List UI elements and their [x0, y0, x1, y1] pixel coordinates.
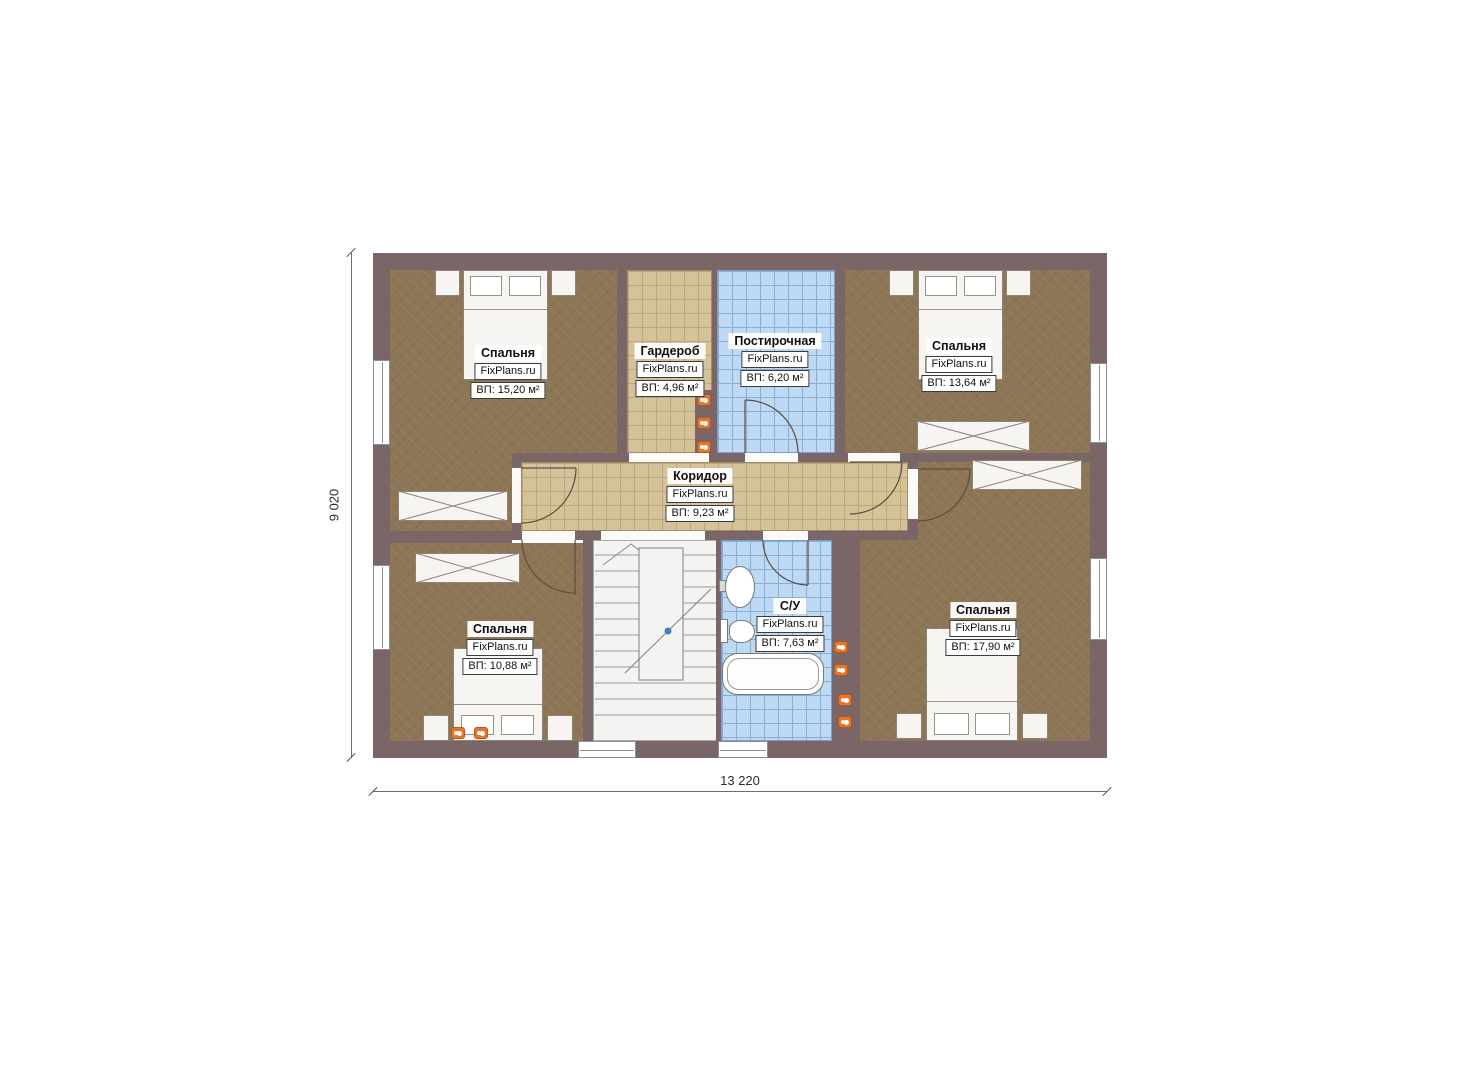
room-brand: FixPlans.ru	[636, 361, 703, 378]
room-name: Спальня	[475, 345, 541, 361]
room-brand: FixPlans.ru	[756, 616, 823, 633]
nightstand	[896, 713, 922, 739]
room-area: ВП: 17,90 м²	[945, 639, 1020, 656]
room-brand: FixPlans.ru	[666, 486, 733, 503]
room-brand: FixPlans.ru	[949, 620, 1016, 637]
room-name: Постирочная	[728, 333, 821, 349]
wall-outer-left	[373, 253, 390, 758]
dimension-height-label: 9 020	[327, 489, 342, 522]
door-opening	[908, 469, 918, 519]
door-opening	[763, 531, 808, 540]
stairs-opening	[601, 531, 705, 540]
room-name: Гардероб	[634, 343, 705, 359]
socket-icon	[838, 694, 852, 706]
pillow	[964, 276, 996, 296]
dimension-line-horizontal	[373, 791, 1107, 792]
pillow	[501, 715, 534, 735]
room-area: ВП: 6,20 м²	[740, 370, 809, 387]
staircase-floor	[593, 540, 718, 741]
wardrobe	[415, 553, 520, 583]
door-opening	[522, 531, 575, 540]
wall-interior	[583, 540, 593, 741]
wall-outer-right	[1090, 253, 1107, 758]
wall-outer-top	[373, 253, 1107, 270]
pillow	[975, 713, 1010, 735]
nightstand	[547, 715, 573, 741]
nightstand	[423, 715, 449, 741]
nightstand	[889, 270, 914, 296]
pillow	[934, 713, 969, 735]
room-name: Спальня	[467, 621, 533, 637]
room-brand: FixPlans.ru	[474, 363, 541, 380]
dimension-width-label: 13 220	[720, 773, 760, 788]
window	[373, 565, 390, 650]
room-label-bedroom-top-left: Спальня FixPlans.ru ВП: 15,20 м²	[470, 345, 545, 399]
door-opening	[848, 453, 900, 462]
room-name: Спальня	[926, 338, 992, 354]
wall-interior	[835, 270, 845, 453]
room-label-wardrobe: Гардероб FixPlans.ru ВП: 4,96 м²	[634, 343, 705, 397]
sink	[725, 566, 755, 608]
door-opening	[512, 468, 521, 523]
room-label-bedroom-bottom-left: Спальня FixPlans.ru ВП: 10,88 м²	[462, 621, 537, 675]
faucet	[719, 580, 726, 592]
room-label-bathroom: С/У FixPlans.ru ВП: 7,63 м²	[755, 598, 824, 652]
window	[1090, 558, 1107, 640]
socket-icon	[838, 716, 852, 728]
room-brand: FixPlans.ru	[741, 351, 808, 368]
nightstand	[435, 270, 460, 296]
window	[373, 360, 390, 445]
room-bedroom-bottom-right-floor	[860, 540, 918, 741]
room-name: Коридор	[667, 468, 733, 484]
room-area: ВП: 4,96 м²	[635, 380, 704, 397]
wardrobe	[917, 421, 1030, 451]
pillow	[925, 276, 957, 296]
room-area: ВП: 9,23 м²	[665, 505, 734, 522]
wall-interior	[617, 270, 627, 453]
room-brand: FixPlans.ru	[925, 356, 992, 373]
window	[578, 741, 636, 758]
floor-plan: Спальня FixPlans.ru ВП: 15,20 м² Гардеро…	[373, 253, 1107, 758]
toilet	[729, 620, 755, 643]
window	[1090, 363, 1107, 443]
nightstand	[1006, 270, 1031, 296]
room-label-laundry: Постирочная FixPlans.ru ВП: 6,20 м²	[728, 333, 821, 387]
room-area: ВП: 7,63 м²	[755, 635, 824, 652]
bathtub	[722, 653, 824, 695]
pillow	[470, 276, 502, 296]
room-name: Спальня	[950, 602, 1016, 618]
window	[718, 741, 768, 758]
toilet-tank	[720, 619, 728, 643]
room-brand: FixPlans.ru	[466, 639, 533, 656]
socket-icon	[451, 727, 465, 739]
socket-icon	[697, 441, 711, 453]
room-area: ВП: 15,20 м²	[470, 382, 545, 399]
room-area: ВП: 13,64 м²	[921, 375, 996, 392]
wall-interior	[390, 531, 512, 543]
room-area: ВП: 10,88 м²	[462, 658, 537, 675]
socket-icon	[474, 727, 488, 739]
socket-icon	[834, 641, 848, 653]
door-opening	[629, 453, 709, 462]
room-label-corridor: Коридор FixPlans.ru ВП: 9,23 м²	[665, 468, 734, 522]
nightstand	[1022, 713, 1048, 739]
floor-plan-page: { "plan": { "brand": "FixPlans.ru", "roo…	[0, 0, 1474, 1080]
room-label-bedroom-top-right: Спальня FixPlans.ru ВП: 13,64 м²	[921, 338, 996, 392]
pillow	[509, 276, 541, 296]
dimension-line-vertical	[351, 253, 352, 758]
nightstand	[551, 270, 576, 296]
socket-icon	[834, 664, 848, 676]
socket-icon	[697, 417, 711, 429]
wardrobe	[972, 460, 1082, 490]
room-name: С/У	[774, 598, 806, 614]
door-opening	[745, 453, 798, 462]
wardrobe	[398, 491, 508, 521]
room-label-bedroom-bottom-right: Спальня FixPlans.ru ВП: 17,90 м²	[945, 602, 1020, 656]
